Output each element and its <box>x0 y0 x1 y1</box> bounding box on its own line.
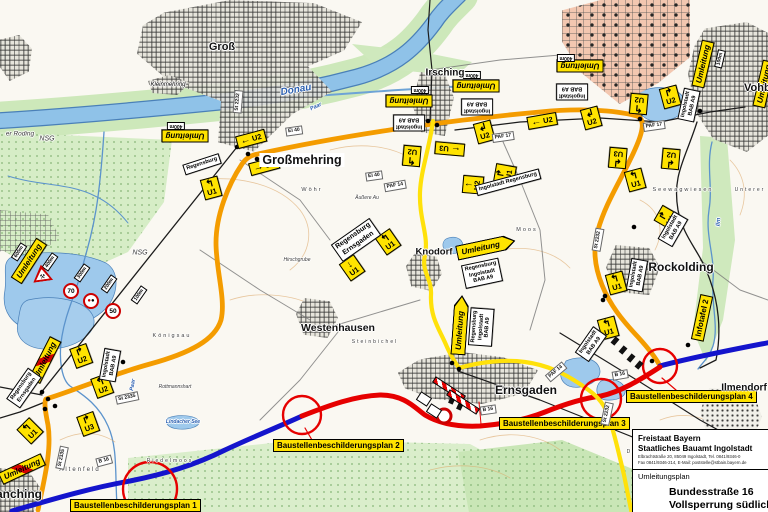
detour-number: U2 <box>98 385 110 396</box>
plan-type-label: Umleitungsplan <box>638 472 768 481</box>
town-label: Irsching <box>426 68 465 79</box>
area-label: er Roding <box>6 131 34 138</box>
direction-sign-line: Ingolstadt <box>396 123 422 130</box>
distance-tag: 400m <box>557 54 575 62</box>
road-number-label: St 2232 <box>233 90 244 113</box>
area-label: Hirschgrube <box>284 257 311 263</box>
detour-number: U2 <box>479 131 490 141</box>
detour-arrow-icon: ← <box>239 135 251 146</box>
umleitung-arrow-text: Umleitung <box>453 311 465 355</box>
u-detour-sign: ↰U2 <box>629 93 648 115</box>
distance-tag: 400m <box>411 86 429 94</box>
town-label: Großmehring <box>259 153 344 167</box>
detour-arrow-icon: ← <box>450 145 461 155</box>
direction-sign: IngolstadtBAB A9 <box>677 87 700 122</box>
road-number-label: PAF 17 <box>492 131 515 143</box>
area-label: Königsau <box>153 333 192 339</box>
detour-number: U1 <box>384 240 396 252</box>
detour-number: U2 <box>542 115 553 125</box>
direction-sign-line: BAB A9 <box>464 101 490 108</box>
road-number-label: B 16 <box>612 369 629 381</box>
area-label: NSG <box>39 136 54 143</box>
direction-sign-line: BAB A9 <box>559 86 585 93</box>
direction-sign: RegensburgErnsgaden <box>6 368 42 409</box>
umleitung-sign: Umleitung <box>161 130 208 143</box>
direction-sign: IngolstadtBAB A9 <box>461 99 493 116</box>
car-glyph: ● <box>91 298 95 304</box>
area-label: Seewagwiesen <box>653 187 714 193</box>
u-detour-sign: ↲U3 <box>608 147 627 169</box>
town-label: Groß <box>209 41 235 53</box>
road-number-label: PAF 14 <box>384 180 407 193</box>
detour-number: U3 <box>613 149 623 158</box>
distance-tag: 400m <box>463 71 481 79</box>
detour-number: U1 <box>206 187 217 197</box>
umleitung-sign: Umleitung <box>691 40 714 89</box>
agency-name-line2: Staatliches Bauamt Ingolstadt <box>638 444 768 454</box>
road-number-label: St 2232 <box>592 228 605 252</box>
u-detour-sign: ↰U1 <box>605 271 627 296</box>
u-detour-sign: ↰U1 <box>624 168 646 193</box>
detour-plan-map: UmleitungUmleitungUmleitungUmleitungUmle… <box>0 0 768 512</box>
water-label: Lindacher See <box>166 419 200 425</box>
road-number-label: B 16 <box>480 404 497 415</box>
direction-sign: IngolstadtBAB A9 <box>393 115 425 132</box>
water-label: Paar <box>129 379 137 392</box>
town-label: Ernsgaden <box>495 383 557 397</box>
plan-title-road: Bundesstraße 16 <box>669 486 768 499</box>
road-number-label: PAF 17 <box>643 120 666 132</box>
detour-number: U3 <box>439 144 449 153</box>
road-number-label: EI 40 <box>285 125 303 136</box>
u-detour-sign: ↲U2 <box>580 106 602 131</box>
direction-sign-line: Ingolstadt <box>464 107 490 114</box>
umleitung-sign: Umleitung <box>452 80 499 93</box>
road-number-label: St 2335 <box>115 391 139 404</box>
road-number-label: EI 40 <box>365 170 383 181</box>
area-label: Äußere Au <box>355 195 379 201</box>
detour-number: U1 <box>611 282 622 292</box>
town-label: Vohburg <box>744 82 768 94</box>
plan-title: Bundesstraße 16 Vollsperrung südlich Ern… <box>669 486 768 512</box>
speed-limit-sign: 50 <box>105 303 121 319</box>
detour-number: U1 <box>630 179 641 189</box>
detour-number: U2 <box>77 355 89 366</box>
roadworks-warning-sign: ⚒ <box>31 263 53 283</box>
direction-sign: RegensburgIngolstadtBAB A9 <box>468 307 494 347</box>
area-label: Moos <box>516 227 537 233</box>
distance-tag: 100m <box>714 49 726 68</box>
direction-sign-line: BAB A9 <box>396 117 422 124</box>
detour-number: U1 <box>27 428 39 440</box>
town-label: Rockolding <box>648 260 713 274</box>
area-label: Wöhr <box>301 187 322 193</box>
direction-sign: IngolstadtBAB A9 <box>575 326 607 362</box>
town-label: Westenhausen <box>301 322 375 334</box>
detour-arrow-icon: ← <box>531 117 542 128</box>
direction-sign-line: Ingolstadt <box>559 92 585 99</box>
u-detour-sign: ←U2 <box>526 112 557 130</box>
road-number-label: B 16 <box>95 455 112 468</box>
plan-label: Infotafel 2 <box>691 294 713 341</box>
direction-sign: RegensburgIngolstadtBAB A9 <box>461 258 503 289</box>
direction-sign: IngolstadtBAB A9 <box>99 348 121 383</box>
detour-number: U2 <box>665 96 676 106</box>
agency-name-line1: Freistaat Bayern <box>638 434 768 444</box>
direction-sign: IngolstadtBAB A9 <box>626 258 648 293</box>
direction-sign: IngolstadtBAB A9 <box>556 84 588 101</box>
water-label: Ilm <box>716 217 723 226</box>
detour-number: U2 <box>251 132 262 142</box>
u-detour-sign: ←U2 <box>235 129 267 149</box>
u-detour-sign: ←U3 <box>435 141 466 157</box>
road-number-label: PAF 14 <box>545 362 567 383</box>
area-label: Riedelmoos <box>147 458 193 464</box>
detour-number: U2 <box>666 150 676 159</box>
town-label: Kleinmehring <box>150 82 185 88</box>
town-label: Knodorf <box>416 247 453 258</box>
direction-sign-line: Regensburg <box>186 156 219 172</box>
area-label: NSG <box>132 250 147 257</box>
u-detour-sign: ↱U3 <box>76 411 100 437</box>
umleitung-sign: Umleitung <box>385 95 432 108</box>
title-block: Freistaat Bayern Staatliches Bauamt Ingo… <box>632 429 768 512</box>
town-label: Ilmendorf <box>721 383 767 394</box>
plan-label: Baustellenbeschilderungsplan 1 <box>70 499 201 512</box>
detour-number: U2 <box>407 147 417 156</box>
divider <box>633 469 768 470</box>
agency-address: Elbrachtstraße 20, 85049 Ingolstadt, Tel… <box>638 454 768 459</box>
agency-contact: Fax 0841/9346-214, E-Mail: poststelle@st… <box>638 460 768 465</box>
detour-number: U2 <box>634 95 644 104</box>
area-label: Rottmannshart <box>159 384 192 390</box>
area-label: Unterer <box>735 187 766 193</box>
plan-title-measure: Vollsperrung südlich Ernsgaden <box>669 499 768 512</box>
direction-sign-line: BAB A9 <box>483 311 492 343</box>
distance-tag: 400m <box>167 122 185 130</box>
umleitung-arrow-text: Umleitung <box>457 240 501 258</box>
no-overtaking-sign: ●● <box>83 293 99 309</box>
umleitung-arrow-face: Umleitung <box>456 235 514 260</box>
direction-sign: Regensburg <box>182 153 221 175</box>
u-detour-sign: ↰U1 <box>200 176 222 201</box>
detour-number: U2 <box>586 117 597 127</box>
detour-number: U1 <box>348 266 360 278</box>
plan-label: Baustellenbeschilderungsplan 2 <box>273 439 404 452</box>
distance-tag: 200m <box>101 274 118 293</box>
umleitung-end-sign: Umleitung <box>0 453 46 485</box>
speed-limit-sign: 70 <box>63 283 79 299</box>
umleitung-arrow-sign: Umleitung <box>450 295 469 356</box>
u-detour-sign: ↰U1 <box>16 417 43 444</box>
u-detour-sign: ↲U2 <box>661 148 680 170</box>
direction-sign: RegensburgErnsgaden <box>331 218 381 262</box>
water-label: Donau <box>280 82 313 98</box>
u-detour-sign: ↱U2 <box>69 343 93 369</box>
detour-number: U3 <box>84 423 96 434</box>
distance-tag: 100m <box>131 285 148 304</box>
umleitung-arrow-sign: Umleitung <box>455 233 517 260</box>
umleitung-arrow-face: Umleitung <box>451 297 468 355</box>
distance-tag: 300m <box>74 263 91 282</box>
area-label: Steinbichel <box>352 339 398 345</box>
u-detour-sign: ↱U2 <box>659 85 681 110</box>
town-label: Manching <box>0 487 42 501</box>
area-label: Altenfeld <box>59 467 100 473</box>
u-detour-sign: ↰U2 <box>402 145 421 167</box>
water-label: Paar <box>309 102 322 112</box>
